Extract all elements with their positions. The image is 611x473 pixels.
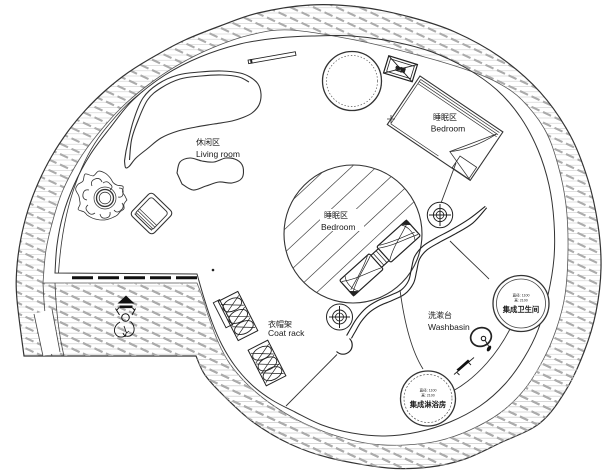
- svg-text:集成淋浴房: 集成淋浴房: [409, 400, 446, 409]
- svg-text:睡眠区: 睡眠区: [433, 113, 457, 122]
- svg-text:休闲区: 休闲区: [196, 137, 220, 147]
- svg-text:Coat rack: Coat rack: [268, 328, 305, 338]
- svg-text:Living room: Living room: [196, 149, 240, 159]
- svg-text:Washbasin: Washbasin: [428, 322, 470, 332]
- svg-text:直径: 1100: 直径: 1100: [420, 388, 437, 393]
- svg-text:直径: 1100: 直径: 1100: [513, 293, 530, 298]
- svg-text:睡眠区: 睡眠区: [324, 211, 348, 220]
- svg-text:高: 2100: 高: 2100: [514, 298, 528, 303]
- svg-text:Bedroom: Bedroom: [321, 222, 356, 232]
- svg-text:洗漱台: 洗漱台: [428, 310, 452, 320]
- svg-text:Bedroom: Bedroom: [431, 124, 466, 134]
- svg-text:集成卫生间: 集成卫生间: [502, 305, 539, 314]
- svg-text:高: 2100: 高: 2100: [421, 393, 435, 398]
